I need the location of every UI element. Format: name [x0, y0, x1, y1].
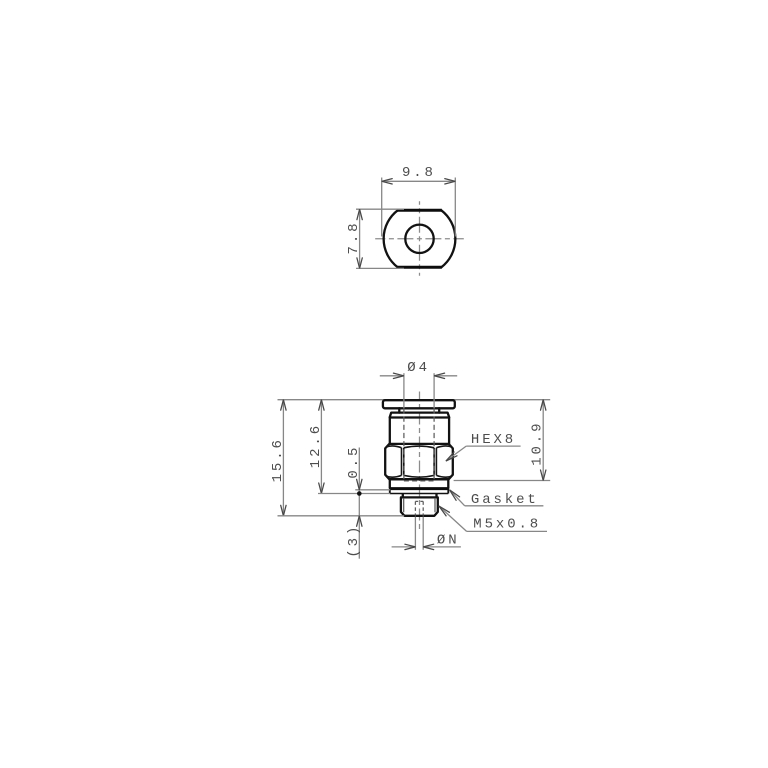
svg-text:10.9: 10.9 [530, 421, 546, 466]
svg-text:Ø4: Ø4 [407, 360, 430, 376]
svg-text:Gasket: Gasket [471, 492, 539, 508]
svg-text:12.6: 12.6 [308, 423, 324, 468]
svg-text:ØN: ØN [437, 533, 460, 549]
svg-text:(3): (3) [346, 524, 362, 558]
svg-text:HEX8: HEX8 [471, 432, 516, 448]
svg-text:15.6: 15.6 [270, 437, 286, 482]
svg-text:0.5: 0.5 [346, 445, 362, 479]
svg-text:9.8: 9.8 [402, 165, 436, 181]
svg-text:7.8: 7.8 [346, 221, 362, 255]
svg-text:M5x0.8: M5x0.8 [473, 516, 541, 532]
